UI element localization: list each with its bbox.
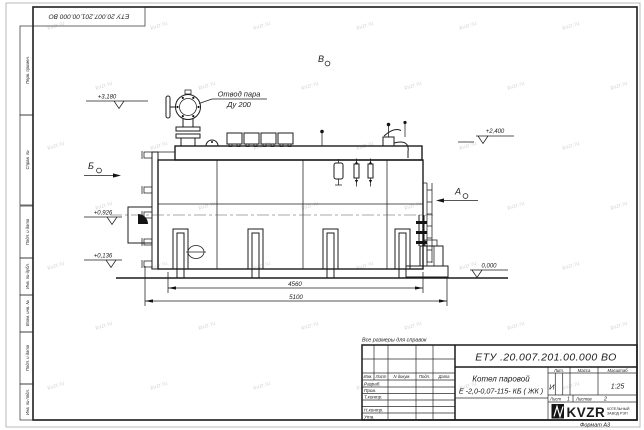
watermark-text: kvzr.ru — [253, 20, 272, 31]
watermark-text: kvzr.ru — [150, 140, 169, 151]
watermark-text: kvzr.ru — [562, 140, 581, 151]
elevation-marks: +3,180 +2,400 +0,926 +0,136 0,000 — [84, 95, 514, 278]
watermark-text: kvzr.ru — [150, 260, 169, 271]
col-list: Лист — [375, 374, 387, 379]
corner-stamp: ЕТУ 20.007.201.00.000 ВО — [33, 7, 145, 26]
company-line2: ЗАВОД РЭП — [607, 412, 628, 416]
margin-label: Инв. № дубл. — [25, 263, 30, 289]
label-steam-line2: Ду 200 — [226, 100, 252, 109]
margin-label: Инв. № подл. — [25, 389, 30, 415]
watermark-text: kvzr.ru — [150, 20, 169, 31]
elevation-0136: +0,136 — [94, 254, 113, 260]
drawing-sheet: kvzr.rukvzr.rukvzr.rukvzr.rukvzr.rukvzr.… — [0, 0, 644, 430]
title-block: ЕТУ .20.007.201.00.000 ВО Котел паровой … — [362, 345, 637, 420]
watermark-text: kvzr.ru — [47, 140, 66, 151]
col-date: Дата — [437, 374, 450, 379]
mass-label: Масса — [578, 368, 591, 373]
boiler-general-view-drawing: kvzr.rukvzr.rukvzr.rukvzr.rukvzr.rukvzr.… — [0, 0, 644, 430]
watermark-text: kvzr.ru — [356, 20, 375, 31]
foundation — [406, 266, 448, 277]
sheet-value: 1 — [567, 397, 570, 403]
watermark-text: kvzr.ru — [507, 320, 526, 331]
view-letter-v: В — [318, 54, 324, 64]
sheets-label: Листов — [575, 396, 592, 401]
watermark-text: kvzr.ru — [610, 200, 629, 211]
label-steam-line1: Отвод пара — [218, 90, 261, 99]
elevation-2400: +2,400 — [486, 129, 505, 135]
row-razrab: Разраб. — [364, 381, 381, 386]
watermark-text: kvzr.ru — [47, 380, 66, 391]
margin-label: Справ. № — [25, 150, 30, 169]
watermark-text: kvzr.ru — [562, 20, 581, 31]
watermark-text: kvzr.ru — [404, 320, 423, 331]
level-gauges — [334, 159, 373, 187]
watermark-text: kvzr.ru — [301, 320, 320, 331]
view-arrows: Б А В — [84, 54, 478, 203]
watermark-text: kvzr.ru — [562, 260, 581, 271]
watermark-text: kvzr.ru — [507, 200, 526, 211]
sheets-value: 2 — [603, 397, 607, 403]
row-prov: Пров. — [364, 388, 376, 393]
product-name-line1: Котел паровой — [472, 375, 530, 384]
company-logo: KVZR КОТЕЛЬНЫЙ ЗАВОД РЭП — [552, 404, 630, 420]
support-legs — [173, 229, 410, 278]
elevation-3180: +3,180 — [98, 95, 117, 101]
product-name-line2: Е -2,0-0,07-115- КБ ( ЖК ) — [459, 387, 543, 396]
watermark-text: kvzr.ru — [198, 80, 217, 91]
lit-value: И — [549, 383, 555, 392]
watermark-text: kvzr.ru — [198, 320, 217, 331]
watermark-text: kvzr.ru — [150, 380, 169, 391]
watermark-text: kvzr.ru — [356, 260, 375, 271]
col-sign: Подп. — [419, 374, 430, 379]
watermark-text: kvzr.ru — [95, 320, 114, 331]
lit-label: Лит. — [553, 368, 564, 373]
safety-valve — [383, 121, 408, 158]
watermark-text: kvzr.ru — [459, 20, 478, 31]
margin-label: Подп. и дата — [25, 344, 30, 371]
drum-fittings — [206, 121, 408, 158]
margin-column: Перв. примен. Справ. № Подп. и дата Инв.… — [20, 26, 33, 420]
view-letter-a: А — [454, 187, 461, 197]
damper-lever — [138, 214, 148, 224]
watermark-text: kvzr.ru — [404, 80, 423, 91]
watermark-text: kvzr.ru — [253, 260, 272, 271]
boiler-body — [110, 146, 433, 269]
watermark-text: kvzr.ru — [562, 380, 581, 391]
sheet-label: Лист — [549, 396, 561, 401]
watermark-text: kvzr.ru — [610, 80, 629, 91]
col-izm: Изм. — [364, 374, 373, 379]
scale-value: 1:25 — [611, 384, 625, 391]
burner-box — [128, 151, 152, 268]
watermark-text: kvzr.ru — [47, 260, 66, 271]
row-utv: Утв. — [364, 414, 374, 419]
watermark-text: kvzr.ru — [301, 80, 320, 91]
scale-label: Масштаб — [607, 368, 628, 373]
steam-outlet-valve — [166, 90, 201, 146]
company-line1: КОТЕЛЬНЫЙ — [607, 407, 630, 411]
margin-label: Взам. инв. № — [25, 300, 30, 326]
watermark-text: kvzr.ru — [253, 380, 272, 391]
right-side-equipment — [406, 183, 448, 277]
row-tkontr: Т.контр. — [364, 395, 383, 400]
dimension-4560: 4560 — [288, 281, 302, 288]
feed-pump — [406, 240, 448, 277]
corner-stamp-number: ЕТУ 20.007.201.00.000 ВО — [49, 13, 130, 20]
row-nkontr: Н.контр. — [364, 408, 383, 413]
margin-label: Подп. и дата — [25, 218, 30, 245]
logo-text: KVZR — [567, 405, 606, 420]
steam-outlet-label: Отвод пара Ду 200 — [199, 90, 267, 110]
watermark-text: kvzr.ru — [404, 200, 423, 211]
watermark-text: kvzr.ru — [95, 80, 114, 91]
margin-label: Перв. примен. — [25, 56, 30, 84]
doc-number: ЕТУ .20.007.201.00.000 ВО — [475, 352, 616, 364]
format-label: Формат А3 — [580, 422, 611, 428]
elevation-0926: +0,926 — [94, 211, 113, 217]
dimension-5100: 5100 — [289, 294, 303, 301]
watermark-text: kvzr.ru — [610, 320, 629, 331]
elevation-0000: 0,000 — [481, 264, 497, 270]
handwheel — [166, 96, 170, 118]
reference-note: Все размеры для справок — [362, 338, 427, 344]
watermark-text: kvzr.ru — [507, 80, 526, 91]
view-letter-b: Б — [88, 161, 94, 171]
watermark-text: kvzr.ru — [198, 200, 217, 211]
boiler-side-view: Отвод пара Ду 200 — [84, 54, 514, 306]
front-fittings — [142, 151, 152, 268]
col-doc: N докум. — [394, 374, 411, 379]
watermark-layer: kvzr.rukvzr.rukvzr.rukvzr.rukvzr.rukvzr.… — [47, 20, 629, 391]
dimensions: 4560 5100 — [145, 266, 447, 306]
watermark-text: kvzr.ru — [301, 200, 320, 211]
